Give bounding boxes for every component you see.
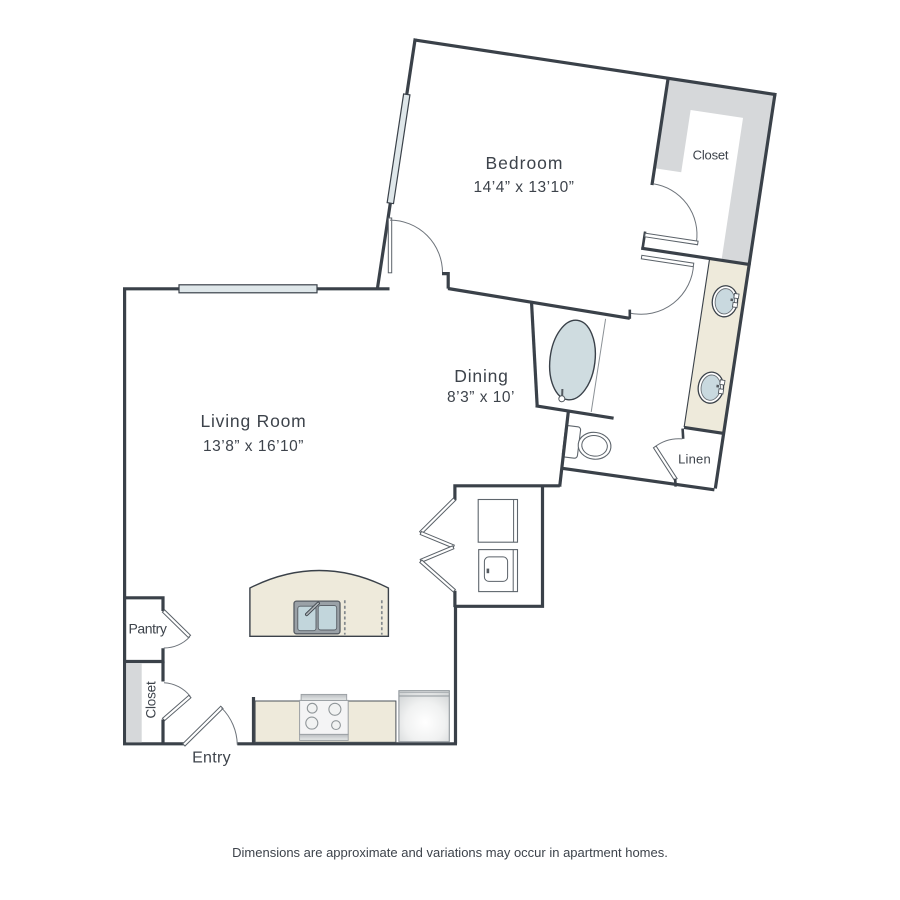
- svg-text:13’8” x 16’10”: 13’8” x 16’10”: [203, 438, 304, 455]
- svg-text:Entry: Entry: [192, 750, 231, 767]
- svg-text:Dimensions are approximate and: Dimensions are approximate and variation…: [232, 845, 668, 860]
- svg-text:14’4” x 13’10”: 14’4” x 13’10”: [474, 179, 575, 196]
- svg-text:Dining: Dining: [454, 366, 508, 386]
- svg-text:Closet: Closet: [144, 681, 159, 719]
- svg-text:Living Room: Living Room: [200, 411, 306, 431]
- svg-text:Closet: Closet: [693, 148, 729, 163]
- svg-text:8’3” x 10’: 8’3” x 10’: [447, 389, 515, 406]
- svg-text:Pantry: Pantry: [128, 621, 166, 637]
- svg-text:Linen: Linen: [678, 452, 711, 467]
- svg-text:Bedroom: Bedroom: [485, 153, 563, 173]
